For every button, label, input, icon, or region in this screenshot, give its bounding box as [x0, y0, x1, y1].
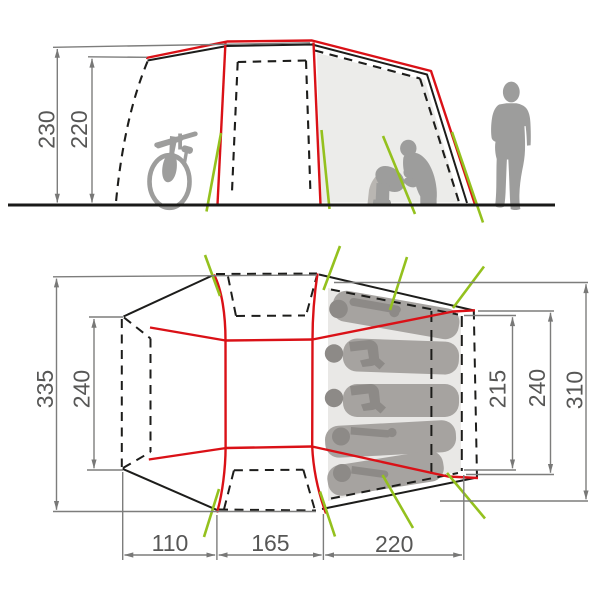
svg-text:240: 240 [524, 369, 550, 407]
svg-text:230: 230 [33, 110, 59, 148]
svg-text:240: 240 [69, 370, 95, 408]
svg-text:220: 220 [66, 110, 92, 148]
svg-text:220: 220 [375, 531, 413, 557]
svg-text:335: 335 [32, 370, 58, 408]
svg-text:165: 165 [251, 530, 289, 556]
svg-text:110: 110 [152, 530, 189, 556]
svg-text:310: 310 [562, 371, 588, 409]
svg-text:215: 215 [485, 370, 511, 408]
